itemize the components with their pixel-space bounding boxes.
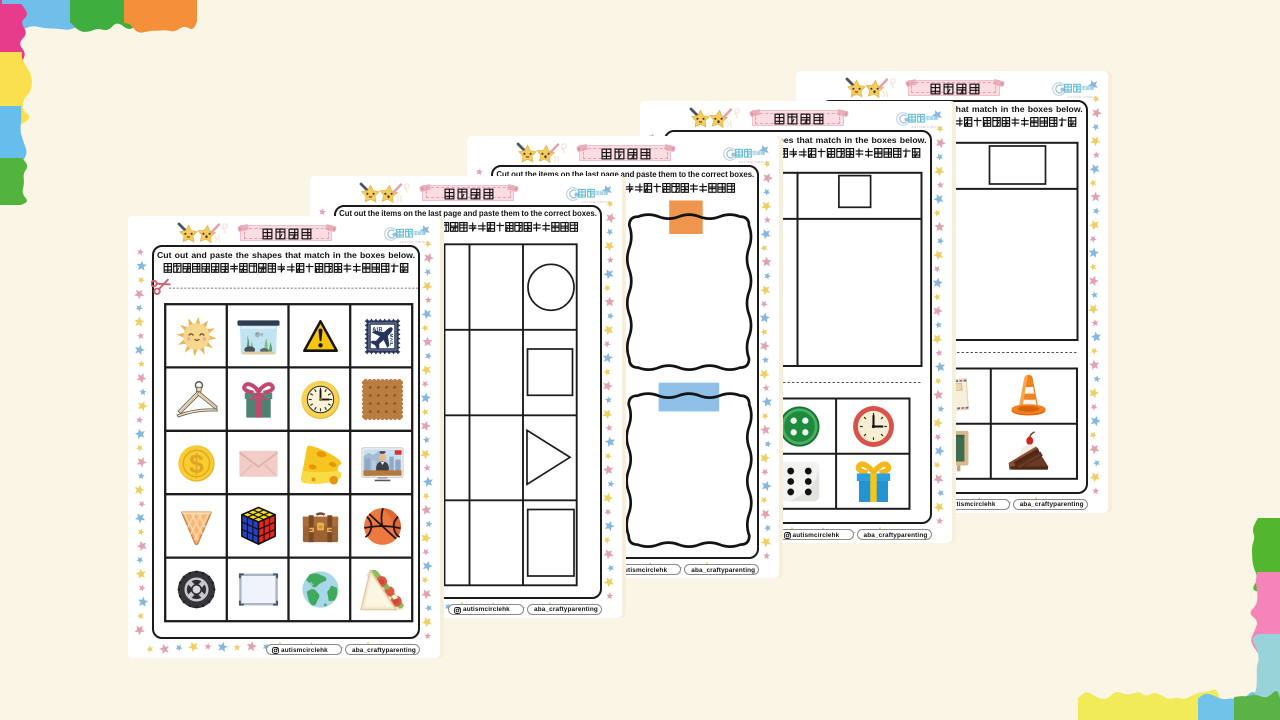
svg-text:$: $ — [190, 448, 205, 478]
svg-text:MAIL: MAIL — [389, 333, 394, 346]
svg-text:AUTISM CIRCLE: AUTISM CIRCLE — [400, 240, 430, 244]
